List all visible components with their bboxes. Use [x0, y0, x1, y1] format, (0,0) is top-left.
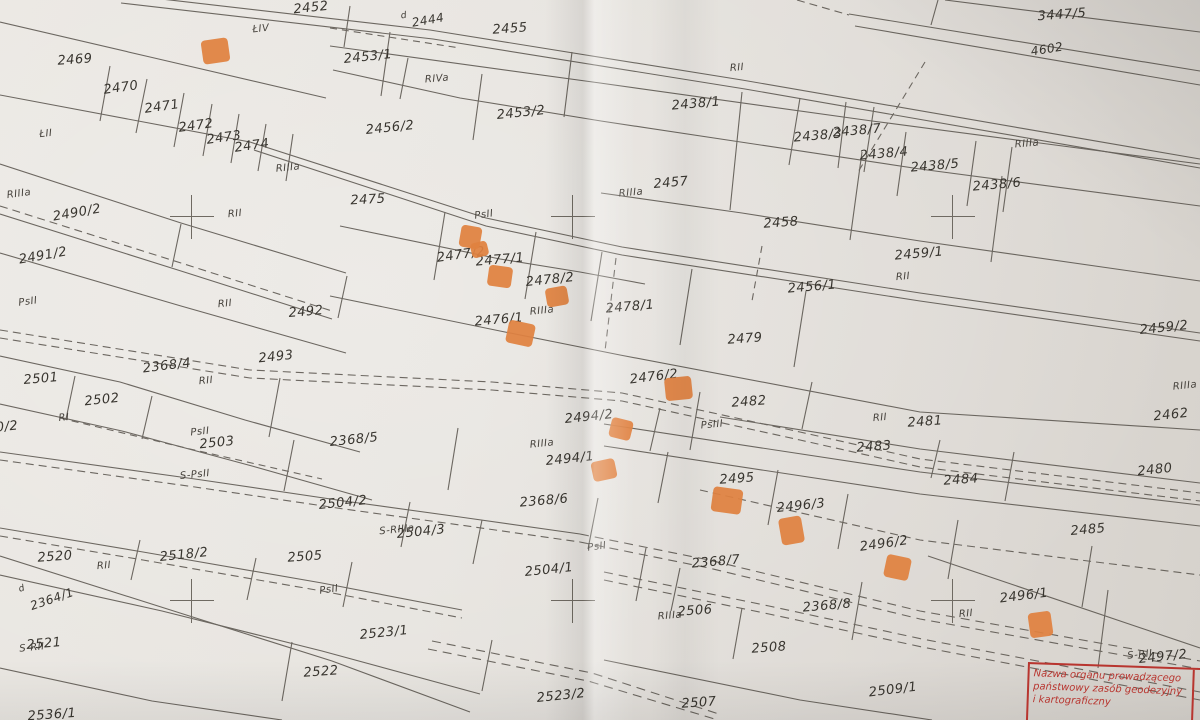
parcel-label: 2457 — [653, 174, 689, 192]
stamp-side-letter: S — [1191, 670, 1200, 720]
parcel-label: 2522 — [303, 663, 339, 680]
parcel-label: 2485 — [1070, 521, 1106, 539]
parcel-label: 2458 — [763, 214, 799, 231]
highlight-marker — [777, 515, 804, 546]
soil-class-label: RII — [227, 208, 242, 220]
highlight-marker — [469, 240, 489, 259]
soil-class-label: RII — [217, 298, 232, 310]
cadastral-map-photo: 245524522469247024712472247324742453/124… — [0, 0, 1200, 720]
parcel-label: 2483 — [856, 438, 892, 455]
parcel-label: 2484 — [943, 471, 979, 488]
stamp-text: Nazwa organu prowadzącego państwowy zasó… — [1028, 664, 1193, 720]
highlight-marker — [1027, 610, 1053, 638]
highlight-marker — [200, 37, 230, 65]
soil-class-label: RII — [895, 271, 910, 283]
parcel-label: 2469 — [57, 51, 93, 68]
soil-class-label: RIIIa — [1014, 137, 1039, 150]
highlight-marker — [487, 264, 514, 288]
soil-class-label: RII — [872, 412, 887, 424]
parcel-label: 2455 — [492, 20, 528, 37]
soil-class-label: ŁII — [39, 128, 53, 140]
soil-class-label: RII — [96, 560, 111, 572]
soil-class-label: RIIIa — [618, 186, 643, 199]
soil-class-label: RII — [729, 62, 744, 74]
parcel-label: 2492 — [288, 303, 324, 321]
highlight-marker — [710, 486, 743, 515]
parcel-label: 2520 — [37, 548, 73, 565]
parcel-label: 0/2 — [0, 418, 19, 435]
parcel-label: 2501 — [23, 370, 59, 388]
soil-class-label: RIVa — [424, 72, 449, 85]
soil-class-label: ŁIV — [252, 23, 270, 36]
parcel-label: 2507 — [681, 694, 717, 711]
parcel-label: 2508 — [751, 639, 787, 656]
parcel-label: 2495 — [719, 470, 755, 487]
soil-class-label: PsIII — [700, 419, 723, 432]
soil-class-label: RII — [958, 608, 973, 620]
highlight-marker — [545, 285, 570, 308]
soil-class-label: RII — [198, 375, 213, 387]
parcel-label: 2505 — [287, 548, 323, 565]
highlight-marker — [882, 553, 911, 581]
highlight-marker — [663, 375, 692, 401]
parcel-label: 2481 — [907, 413, 943, 430]
soil-class-label: RI — [58, 412, 70, 424]
parcel-label: 2475 — [350, 192, 386, 209]
highlight-marker — [504, 319, 535, 347]
soil-class-label: RIIIa — [657, 609, 682, 622]
parcel-label: 2482 — [731, 393, 767, 410]
parcel-label: 2479 — [727, 330, 763, 347]
authority-stamp-box: Nazwa organu prowadzącego państwowy zasó… — [1026, 662, 1200, 720]
parcel-label: 2536/1 — [27, 706, 77, 720]
soil-class-label: PsII — [190, 426, 210, 439]
